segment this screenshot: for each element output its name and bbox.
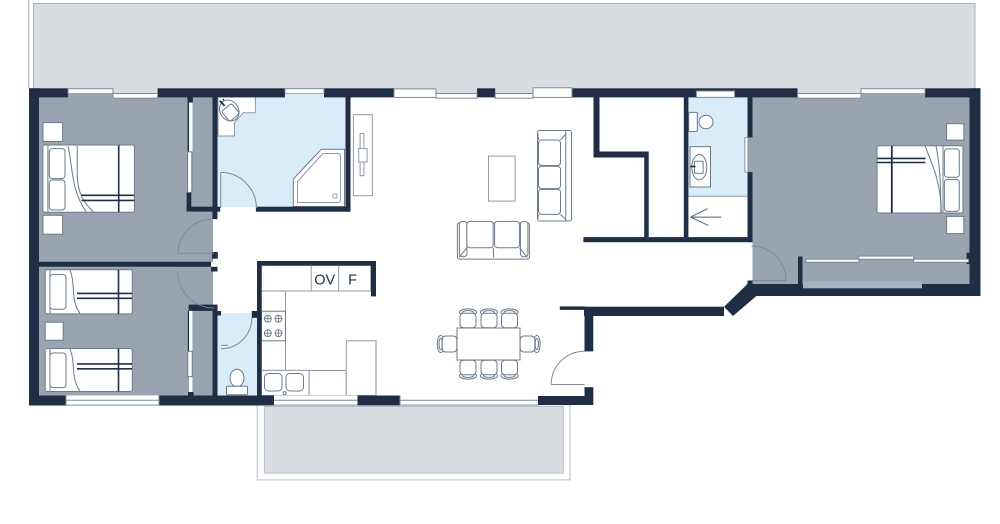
svg-text:OV: OV <box>314 273 335 289</box>
svg-text:F: F <box>348 273 357 289</box>
